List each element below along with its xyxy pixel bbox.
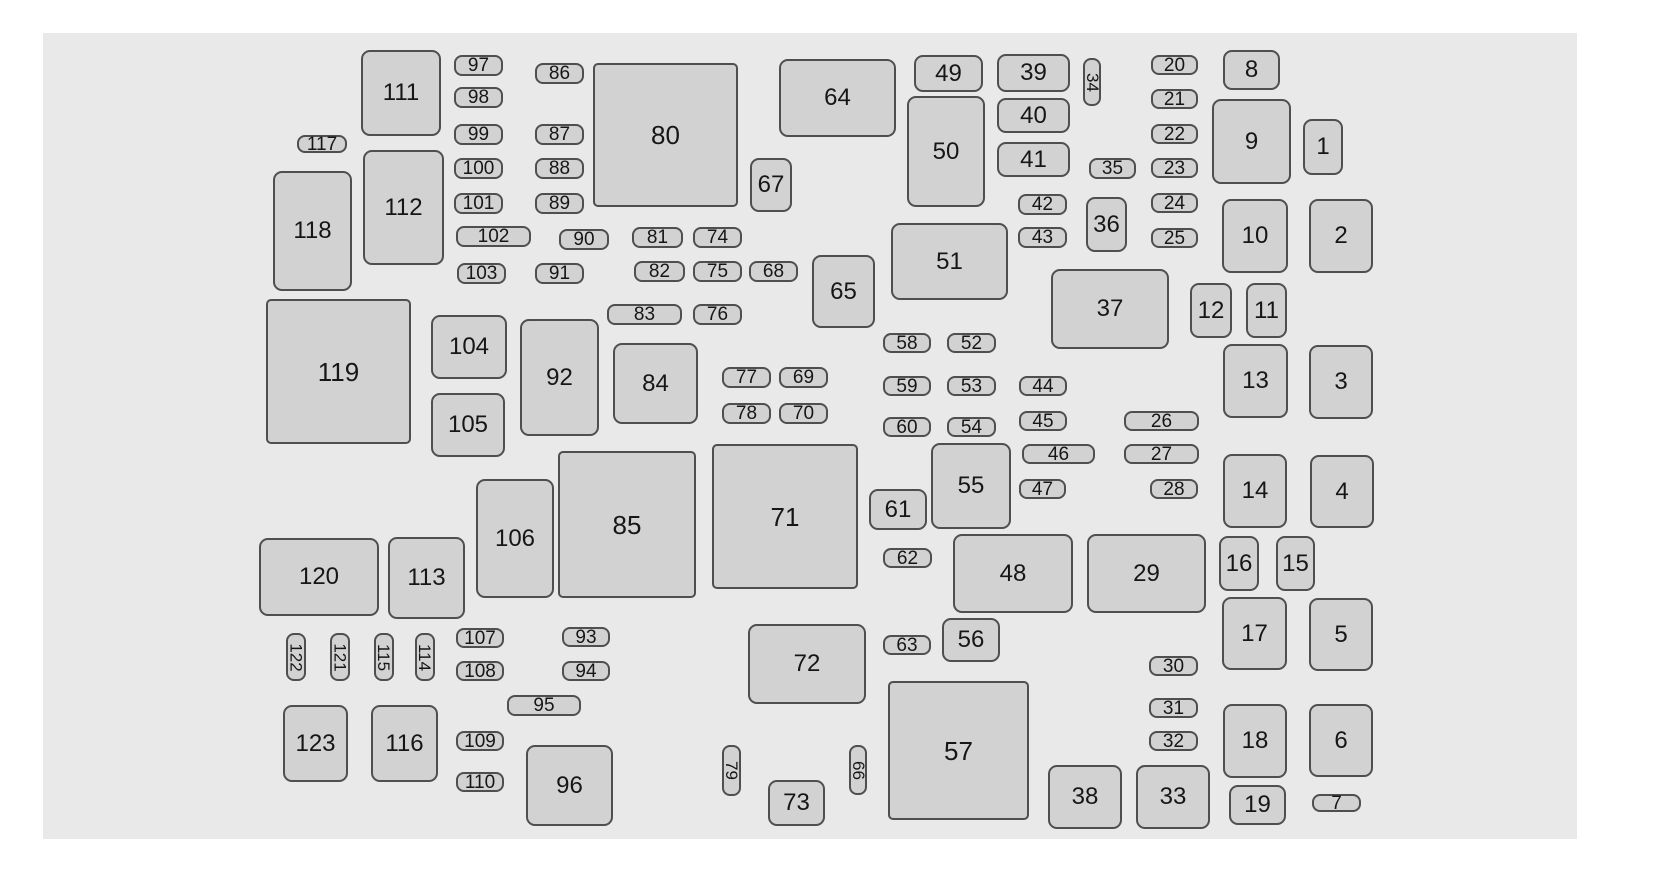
fuse-item-label: 121 xyxy=(332,643,349,671)
fuse-item-43: 43 xyxy=(1018,227,1067,248)
fuse-item-26: 26 xyxy=(1124,411,1199,431)
fuse-item-118: 118 xyxy=(273,171,352,291)
fuse-item-label: 67 xyxy=(758,173,785,197)
fuse-item-label: 120 xyxy=(299,565,339,589)
fuse-item-label: 35 xyxy=(1102,159,1123,178)
fuse-item-82: 82 xyxy=(634,261,685,282)
fuse-item-1: 1 xyxy=(1303,119,1343,175)
fuse-item-122: 122 xyxy=(286,633,306,681)
fuse-item-label: 71 xyxy=(771,504,800,530)
fuse-item-label: 11 xyxy=(1254,299,1279,323)
fuse-item-label: 104 xyxy=(449,335,489,359)
fuse-item-label: 55 xyxy=(958,474,985,498)
fuse-item-label: 107 xyxy=(464,629,496,648)
fuse-item-16: 16 xyxy=(1219,536,1259,591)
fuse-item-label: 45 xyxy=(1032,412,1053,431)
fuse-item-label: 72 xyxy=(794,652,821,676)
fuse-item-label: 68 xyxy=(763,262,784,281)
fuse-item-50: 50 xyxy=(907,96,985,207)
fuse-item-53: 53 xyxy=(947,376,996,396)
fuse-item-label: 103 xyxy=(466,264,498,283)
fuse-item-label: 41 xyxy=(1020,148,1047,172)
fuse-item-85: 85 xyxy=(558,451,696,598)
fuse-item-120: 120 xyxy=(259,538,379,616)
fuse-item-19: 19 xyxy=(1229,785,1286,825)
fuse-item-label: 113 xyxy=(407,566,445,590)
fuse-item-51: 51 xyxy=(891,223,1008,300)
fuse-item-57: 57 xyxy=(888,681,1029,820)
fuse-item-label: 44 xyxy=(1032,377,1053,396)
fuse-item-75: 75 xyxy=(693,261,742,282)
fuse-item-label: 38 xyxy=(1072,785,1099,809)
fuse-item-76: 76 xyxy=(693,304,742,325)
fuse-item-label: 75 xyxy=(707,262,728,281)
fuse-item-label: 36 xyxy=(1093,213,1120,237)
fuse-item-55: 55 xyxy=(931,443,1011,529)
fuse-item-label: 2 xyxy=(1334,224,1347,248)
fuse-item-label: 28 xyxy=(1163,480,1184,499)
fuse-item-116: 116 xyxy=(371,705,438,782)
fuse-item-80: 80 xyxy=(593,63,738,207)
fuse-item-label: 91 xyxy=(549,264,570,283)
fuse-item-97: 97 xyxy=(454,55,503,76)
fuse-item-84: 84 xyxy=(613,343,698,424)
fuse-item-label: 117 xyxy=(307,135,337,154)
fuse-item-63: 63 xyxy=(883,635,931,655)
fuse-item-29: 29 xyxy=(1087,534,1206,613)
fuse-item-label: 98 xyxy=(468,88,489,107)
fuse-item-86: 86 xyxy=(535,63,584,84)
fuse-item-101: 101 xyxy=(454,193,503,214)
fuse-item-label: 37 xyxy=(1097,297,1124,321)
fuse-item-105: 105 xyxy=(431,393,505,457)
fuse-item-69: 69 xyxy=(779,367,828,388)
fuse-item-label: 92 xyxy=(546,366,573,390)
fuse-item-45: 45 xyxy=(1019,411,1067,431)
fuse-item-label: 108 xyxy=(464,662,496,681)
fuse-item-112: 112 xyxy=(363,150,444,265)
fuse-item-label: 65 xyxy=(830,280,857,304)
fuse-item-label: 21 xyxy=(1164,90,1185,109)
fuse-item-13: 13 xyxy=(1223,344,1288,418)
fuse-item-label: 9 xyxy=(1245,130,1258,154)
fuse-item-label: 123 xyxy=(295,732,335,756)
fuse-item-label: 99 xyxy=(468,125,489,144)
fuse-item-106: 106 xyxy=(476,479,554,598)
fuse-item-label: 112 xyxy=(384,196,422,220)
fuse-item-label: 78 xyxy=(736,404,757,423)
fuse-item-label: 59 xyxy=(896,377,917,396)
fuse-item-27: 27 xyxy=(1124,444,1199,464)
fuse-item-111: 111 xyxy=(361,50,441,136)
fuse-item-28: 28 xyxy=(1150,479,1198,499)
fuse-item-108: 108 xyxy=(456,661,504,681)
fuse-item-99: 99 xyxy=(454,124,503,145)
fuse-item-41: 41 xyxy=(997,142,1070,177)
fuse-item-70: 70 xyxy=(779,403,828,424)
fuse-item-32: 32 xyxy=(1149,731,1198,751)
fuse-item-label: 111 xyxy=(383,81,419,105)
fuse-item-label: 27 xyxy=(1151,445,1172,464)
fuse-item-115: 115 xyxy=(374,633,394,681)
fuse-item-label: 80 xyxy=(651,122,680,148)
fuse-item-label: 26 xyxy=(1151,412,1172,431)
fuse-item-65: 65 xyxy=(812,255,875,328)
fuse-item-label: 81 xyxy=(647,228,668,247)
fuse-item-87: 87 xyxy=(535,124,584,145)
fuse-item-100: 100 xyxy=(454,158,503,179)
fuse-item-42: 42 xyxy=(1018,194,1067,215)
fuse-item-label: 20 xyxy=(1164,56,1185,75)
fuse-item-label: 85 xyxy=(613,512,642,538)
fuse-item-71: 71 xyxy=(712,444,858,589)
fuse-item-109: 109 xyxy=(456,731,504,751)
fuse-item-117: 117 xyxy=(297,135,347,153)
fuse-item-78: 78 xyxy=(722,403,771,424)
fuse-item-90: 90 xyxy=(559,229,609,250)
fuse-item-label: 53 xyxy=(961,377,982,396)
fuse-item-label: 19 xyxy=(1244,793,1271,817)
fuse-item-81: 81 xyxy=(632,227,683,248)
fuse-item-label: 61 xyxy=(885,498,912,522)
fuse-item-label: 119 xyxy=(318,359,359,385)
fuse-item-label: 18 xyxy=(1242,729,1269,753)
fuse-item-9: 9 xyxy=(1212,99,1291,184)
fuse-item-label: 79 xyxy=(723,761,740,780)
fuse-item-label: 62 xyxy=(897,549,918,568)
fuse-item-114: 114 xyxy=(415,633,435,681)
fuse-item-5: 5 xyxy=(1309,598,1373,671)
fuse-item-37: 37 xyxy=(1051,269,1169,349)
fuse-item-47: 47 xyxy=(1019,479,1066,499)
fuse-item-label: 10 xyxy=(1242,224,1269,248)
fuse-item-label: 63 xyxy=(896,636,917,655)
fuse-item-113: 113 xyxy=(388,537,465,619)
fuse-item-64: 64 xyxy=(779,59,896,137)
fuse-item-68: 68 xyxy=(749,261,798,282)
fuse-item-label: 82 xyxy=(649,262,670,281)
fuse-item-label: 88 xyxy=(549,159,570,178)
fuse-item-label: 77 xyxy=(736,368,757,387)
fuse-item-123: 123 xyxy=(283,705,348,782)
fuse-item-31: 31 xyxy=(1149,698,1198,718)
fuse-item-14: 14 xyxy=(1223,454,1287,528)
fuse-item-label: 5 xyxy=(1334,623,1347,647)
fuse-item-20: 20 xyxy=(1151,55,1198,75)
fuse-item-22: 22 xyxy=(1151,124,1198,144)
fuse-item-label: 51 xyxy=(936,250,963,274)
fuse-item-12: 12 xyxy=(1190,283,1232,338)
fuse-item-7: 7 xyxy=(1312,794,1361,812)
fuse-item-62: 62 xyxy=(883,548,932,568)
fuse-item-58: 58 xyxy=(883,333,931,353)
fuse-item-10: 10 xyxy=(1222,199,1288,273)
fuse-item-label: 94 xyxy=(575,662,596,681)
fuse-item-label: 76 xyxy=(707,305,728,324)
fuse-item-label: 60 xyxy=(896,418,917,437)
fuse-item-48: 48 xyxy=(953,534,1073,613)
fuse-item-label: 46 xyxy=(1048,445,1069,464)
fuse-item-18: 18 xyxy=(1223,704,1287,778)
fuse-item-8: 8 xyxy=(1223,50,1280,90)
fuse-item-label: 12 xyxy=(1198,299,1225,323)
fuse-item-label: 109 xyxy=(464,732,496,751)
fuse-item-91: 91 xyxy=(535,263,584,284)
fuse-item-label: 15 xyxy=(1282,552,1309,576)
fuse-item-label: 24 xyxy=(1164,194,1185,213)
fuse-item-label: 3 xyxy=(1334,370,1347,394)
fuse-item-label: 122 xyxy=(288,643,305,671)
fuse-item-label: 1 xyxy=(1316,135,1329,159)
fuse-item-label: 17 xyxy=(1241,622,1268,646)
fuse-item-label: 52 xyxy=(961,334,982,353)
fuse-item-label: 30 xyxy=(1163,657,1184,676)
fuse-item-label: 7 xyxy=(1331,794,1342,813)
fuse-item-79: 79 xyxy=(722,745,741,796)
fuse-item-39: 39 xyxy=(997,54,1070,92)
fuse-item-label: 8 xyxy=(1245,58,1258,82)
fuse-item-label: 13 xyxy=(1242,369,1269,393)
fuse-item-54: 54 xyxy=(947,417,996,437)
fuse-item-59: 59 xyxy=(883,376,931,396)
fuse-item-label: 89 xyxy=(549,194,570,213)
fuse-item-4: 4 xyxy=(1310,455,1374,528)
fuse-item-label: 74 xyxy=(707,228,728,247)
fuse-item-label: 93 xyxy=(575,628,596,647)
fuse-item-60: 60 xyxy=(883,417,931,437)
fuse-item-label: 6 xyxy=(1334,729,1347,753)
fuse-item-34: 34 xyxy=(1083,58,1101,106)
fuse-item-label: 42 xyxy=(1032,195,1053,214)
fuse-item-label: 105 xyxy=(448,413,488,437)
fuse-item-6: 6 xyxy=(1309,704,1373,777)
fuse-item-label: 25 xyxy=(1164,229,1185,248)
fuse-item-label: 69 xyxy=(793,368,814,387)
fuse-item-label: 29 xyxy=(1133,562,1160,586)
fuse-item-label: 116 xyxy=(385,732,423,756)
fuse-item-label: 64 xyxy=(824,86,851,110)
fuse-item-label: 14 xyxy=(1242,479,1269,503)
fuse-item-93: 93 xyxy=(562,627,610,647)
fuse-item-38: 38 xyxy=(1048,765,1122,829)
fuse-item-label: 66 xyxy=(850,761,867,780)
fuse-item-36: 36 xyxy=(1086,197,1127,252)
fuse-item-95: 95 xyxy=(507,695,581,716)
fuse-item-67: 67 xyxy=(750,158,792,212)
fuse-item-label: 86 xyxy=(549,64,570,83)
fuse-item-label: 95 xyxy=(533,696,554,715)
fuse-item-2: 2 xyxy=(1309,199,1373,273)
fuse-diagram-page: 1234567891011121314151617181920212223242… xyxy=(0,0,1655,870)
fuse-item-17: 17 xyxy=(1222,597,1287,670)
fuse-item-61: 61 xyxy=(869,489,927,530)
fuse-item-25: 25 xyxy=(1151,228,1198,248)
fuse-item-94: 94 xyxy=(562,661,610,681)
fuse-item-label: 83 xyxy=(634,305,655,324)
fuse-item-label: 101 xyxy=(463,194,495,213)
fuse-item-label: 39 xyxy=(1020,61,1047,85)
fuse-item-label: 100 xyxy=(463,159,495,178)
fuse-item-label: 23 xyxy=(1164,159,1185,178)
fuse-item-66: 66 xyxy=(849,745,867,795)
fuse-item-33: 33 xyxy=(1136,765,1210,829)
fuse-item-label: 90 xyxy=(573,230,594,249)
fuse-item-label: 33 xyxy=(1160,785,1187,809)
fuse-item-label: 115 xyxy=(376,643,393,670)
fuse-item-44: 44 xyxy=(1019,376,1067,396)
fuse-item-77: 77 xyxy=(722,367,771,388)
fuse-item-104: 104 xyxy=(431,315,507,379)
fuse-item-label: 47 xyxy=(1032,480,1053,499)
fuse-item-label: 110 xyxy=(465,773,495,792)
fuse-item-label: 97 xyxy=(468,56,489,75)
fuse-item-49: 49 xyxy=(914,55,983,92)
fuse-item-11: 11 xyxy=(1246,283,1287,338)
fuse-item-label: 56 xyxy=(958,628,985,652)
fuse-item-label: 58 xyxy=(896,334,917,353)
fuse-item-35: 35 xyxy=(1089,158,1136,179)
fuse-item-label: 4 xyxy=(1335,480,1348,504)
fuse-item-103: 103 xyxy=(457,263,506,284)
fuse-item-label: 57 xyxy=(944,738,973,764)
fuse-item-107: 107 xyxy=(456,628,504,648)
fuse-item-52: 52 xyxy=(947,333,996,353)
fuse-item-110: 110 xyxy=(456,772,504,792)
fuse-item-label: 50 xyxy=(933,140,960,164)
fuse-item-label: 49 xyxy=(935,62,962,86)
fuse-item-label: 70 xyxy=(793,404,814,423)
fuse-item-label: 87 xyxy=(549,125,570,144)
fuse-item-24: 24 xyxy=(1151,193,1198,213)
fuse-item-73: 73 xyxy=(768,780,825,826)
fuse-item-40: 40 xyxy=(997,98,1070,133)
fuse-item-23: 23 xyxy=(1151,158,1198,178)
fuse-item-21: 21 xyxy=(1151,89,1198,109)
fuse-item-56: 56 xyxy=(942,618,1000,662)
fuse-item-92: 92 xyxy=(520,319,599,436)
fuse-item-89: 89 xyxy=(535,193,584,214)
fuse-item-3: 3 xyxy=(1309,345,1373,419)
fuse-item-46: 46 xyxy=(1022,444,1095,464)
fuse-item-label: 16 xyxy=(1226,552,1253,576)
fuse-item-30: 30 xyxy=(1149,656,1198,676)
fuse-item-label: 54 xyxy=(961,418,982,437)
fuse-item-96: 96 xyxy=(526,745,613,826)
fuse-item-label: 22 xyxy=(1164,125,1185,144)
fuse-item-119: 119 xyxy=(266,299,411,444)
fuse-item-74: 74 xyxy=(693,227,742,248)
fuse-item-98: 98 xyxy=(454,87,503,108)
fuse-item-88: 88 xyxy=(535,158,584,179)
fuse-item-121: 121 xyxy=(330,633,350,681)
fuse-item-label: 40 xyxy=(1020,104,1047,128)
fuse-item-label: 34 xyxy=(1084,73,1101,92)
fuse-item-label: 114 xyxy=(417,643,434,670)
fuse-item-label: 32 xyxy=(1163,732,1184,751)
fuse-item-label: 73 xyxy=(783,791,810,815)
fuse-item-72: 72 xyxy=(748,624,866,704)
fuse-item-15: 15 xyxy=(1276,536,1315,591)
fuse-item-label: 48 xyxy=(1000,562,1027,586)
fuse-item-label: 84 xyxy=(642,372,669,396)
fuse-item-label: 43 xyxy=(1032,228,1053,247)
fuse-item-label: 102 xyxy=(478,227,510,246)
fuse-item-83: 83 xyxy=(607,304,682,325)
fuse-item-label: 96 xyxy=(556,774,583,798)
fuse-item-label: 106 xyxy=(495,527,535,551)
fuse-item-label: 31 xyxy=(1163,699,1184,718)
fuse-item-label: 118 xyxy=(293,219,331,243)
fuse-item-102: 102 xyxy=(456,226,531,247)
